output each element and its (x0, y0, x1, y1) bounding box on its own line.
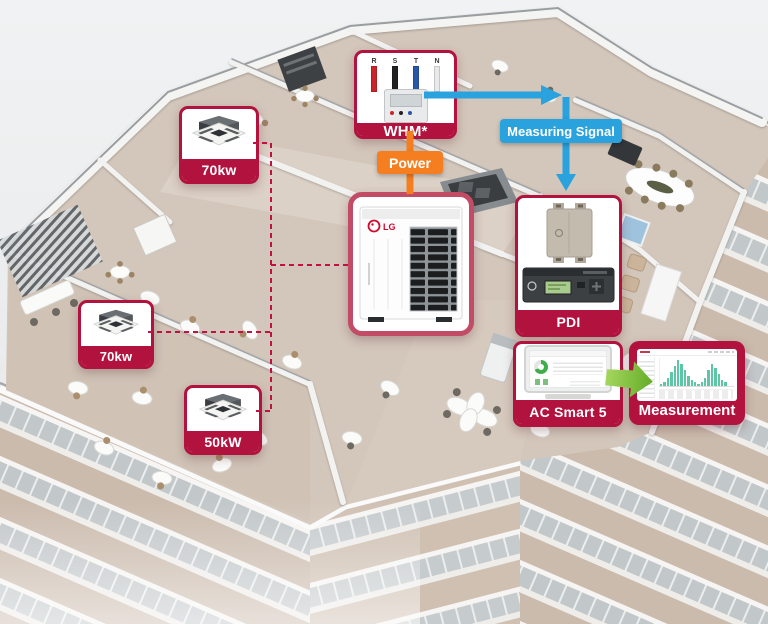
pdi-box: PDI (515, 195, 622, 337)
indoor-unit-box-2: 70kw (78, 300, 154, 369)
pdi-meter-icon (547, 203, 592, 263)
ceiling-cassette-icon (81, 303, 151, 346)
svg-text:LG: LG (383, 222, 396, 232)
ac-smart-label: AC Smart 5 (516, 400, 620, 424)
whm-box: R S T N WHM* (354, 50, 457, 139)
indoor-unit-label: 70kw (182, 159, 256, 181)
measuring-signal-arrow-down (556, 97, 576, 191)
measurement-box: Measurement (629, 341, 745, 425)
outdoor-unit-box: LG (348, 192, 474, 336)
pdi-controller-icon (523, 268, 614, 302)
measurement-label: Measurement (629, 402, 745, 422)
power-label: Power (377, 151, 443, 174)
arrow-down-icon (556, 174, 576, 191)
arrow-right-icon (541, 85, 562, 105)
ceiling-cassette-icon (182, 109, 256, 159)
pdi-label: PDI (518, 310, 619, 334)
wire-label-n: N (434, 58, 439, 66)
measuring-signal-label: Measuring Signal (500, 119, 622, 143)
phase-wires: R S T N (357, 58, 454, 92)
indoor-unit-label: 70kw (81, 346, 151, 366)
ac-smart-tablet-icon (516, 344, 620, 400)
wire-label-s: S (393, 58, 398, 66)
indoor-unit-box-1: 70kw (179, 106, 259, 184)
outdoor-unit-icon: LG (353, 197, 469, 331)
energy-donut-chart (534, 360, 548, 374)
watt-hour-meter-icon: R S T N (357, 53, 454, 123)
wire-label-r: R (371, 58, 376, 66)
indoor-unit-label: 50kW (187, 431, 259, 452)
bottom-haze (0, 500, 420, 624)
ac-smart-box: AC Smart 5 (513, 341, 623, 427)
ceiling-cassette-icon (187, 388, 259, 431)
pdi-devices (518, 198, 619, 310)
measurement-screenshot (637, 349, 737, 401)
whm-label: WHM* (357, 123, 454, 139)
hvac-diagram: 70kw 70kw (0, 0, 768, 624)
indoor-unit-box-3: 50kW (184, 385, 262, 455)
wire-label-t: T (414, 58, 418, 66)
measurement-bars (659, 358, 734, 387)
